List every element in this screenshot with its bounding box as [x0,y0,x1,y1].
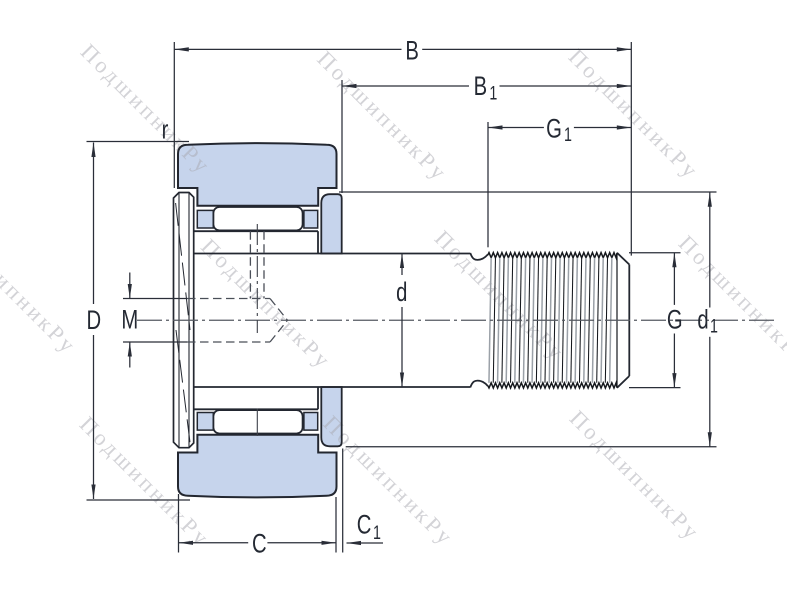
svg-text:1: 1 [489,83,497,104]
svg-text:G: G [667,305,683,336]
svg-text:G: G [546,114,562,145]
svg-text:1: 1 [710,316,718,337]
svg-text:B: B [474,71,488,102]
svg-text:D: D [86,305,101,336]
svg-text:r: r [162,115,169,146]
svg-text:1: 1 [564,124,572,145]
svg-text:d: d [697,305,708,336]
svg-text:B: B [405,36,419,67]
svg-text:M: M [121,305,138,336]
svg-text:C: C [357,510,372,541]
svg-text:C: C [252,529,267,560]
svg-text:d: d [396,277,407,308]
svg-text:1: 1 [373,522,381,543]
